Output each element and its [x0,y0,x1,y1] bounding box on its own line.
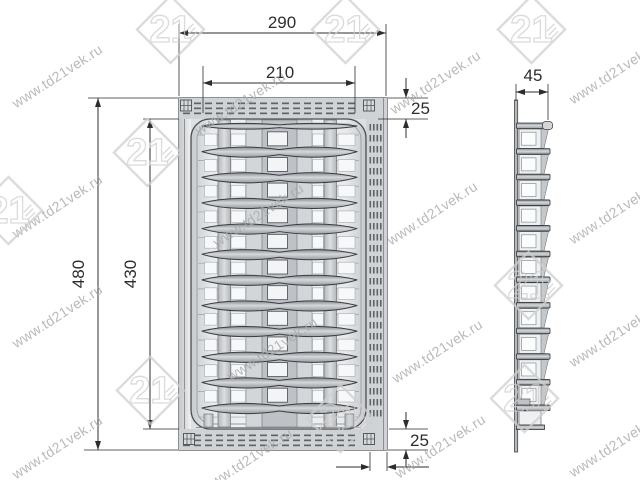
front-opening [313,339,324,351]
border-tick [370,366,372,373]
border-tick [370,278,372,285]
border-dash [337,440,344,442]
border-dash [205,435,212,437]
border-dash [304,445,311,447]
border-dash [293,435,300,437]
border-tick [373,212,375,219]
side-rail-bar [517,379,551,385]
border-dash [227,103,234,105]
border-dash [337,113,344,115]
border-tick [377,300,379,307]
border-dash [216,445,223,447]
border-tick [373,168,375,175]
border-tick [370,311,372,318]
border-tick [380,267,382,274]
side-pocket-hole [522,235,537,248]
arrow-up [403,450,409,459]
border-dash [293,113,300,115]
arrow-left [516,89,525,95]
side-pocket-hole [522,337,537,350]
border-dash [304,103,311,105]
side-pocket-shade [541,206,549,225]
border-dash [194,440,201,442]
front-opening [338,211,355,223]
border-tick [380,223,382,230]
border-tick [373,289,375,296]
front-opening [231,262,246,274]
arrow-left [179,30,188,36]
border-tick [377,410,379,417]
front-opening [338,134,355,146]
border-dash [315,440,322,442]
border-dash [194,103,201,105]
side-pocket-shade [541,283,549,302]
arrow-up [95,98,101,107]
border-tick [373,311,375,318]
border-tick [380,300,382,307]
arrow-right [377,30,386,36]
side-pocket-hole [522,132,537,145]
side-pocket-hole [522,209,537,222]
border-tick [377,124,379,131]
front-opening [313,390,324,402]
front-bottom-right-foot [345,414,354,427]
drawing-scene: 290 210 480 430 [0,0,640,480]
border-tick [380,245,382,252]
front-opening [313,160,324,172]
technical-drawing-canvas: 290 210 480 430 [0,0,640,480]
border-tick [377,179,379,186]
border-dash [216,435,223,437]
border-dash [227,440,234,442]
border-tick [377,333,379,340]
dim-label-inner-width: 210 [266,63,294,82]
front-opening [313,134,324,146]
front-opening [205,160,218,172]
border-dash [293,445,300,447]
border-dash [348,103,355,105]
border-tick [370,388,372,395]
border-tick [380,410,382,417]
border-tick [377,212,379,219]
border-tick [380,157,382,164]
front-center-hole [268,209,288,223]
front-opening [313,211,324,223]
border-tick [373,278,375,285]
border-tick [373,190,375,197]
border-tick [380,278,382,285]
border-dash [337,435,344,437]
front-opening [231,185,246,197]
front-opening [313,237,324,249]
border-tick [380,399,382,406]
front-left-wall [179,98,191,450]
arrow-right [346,80,355,86]
front-center-hole [268,260,288,274]
border-tick [377,366,379,373]
border-tick [370,179,372,186]
arrow-down [95,441,101,450]
arrow-up [403,119,409,128]
side-top-end-cap [543,122,553,130]
border-dash [216,103,223,105]
front-opening [313,185,324,197]
border-dash [326,108,333,110]
border-dash [260,103,267,105]
border-dash [249,440,256,442]
side-rail-bar [517,354,551,360]
border-tick [373,135,375,142]
border-tick [380,355,382,362]
front-opening [231,237,246,249]
border-dash [348,440,355,442]
border-tick [380,366,382,373]
border-tick [377,355,379,362]
border-dash [348,108,355,110]
border-dash [326,113,333,115]
side-rail-bar [517,302,551,308]
border-dash [194,108,201,110]
border-dash [304,440,311,442]
border-tick [380,256,382,263]
front-opening [205,134,218,146]
border-dash [337,445,344,447]
border-dash [227,108,234,110]
arrow-right [539,89,548,95]
border-tick [377,245,379,252]
border-tick [373,223,375,230]
border-tick [373,377,375,384]
front-center-hole [268,286,288,300]
border-tick [380,377,382,384]
border-tick [370,256,372,263]
front-opening [313,262,324,274]
border-tick [380,190,382,197]
border-tick [373,146,375,153]
border-dash [238,435,245,437]
border-tick [373,366,375,373]
border-tick [377,289,379,296]
side-rail-bar [517,277,551,283]
dim-bottom-margin: 25 [388,412,429,468]
border-dash [238,103,245,105]
border-dash [337,103,344,105]
border-dash [205,108,212,110]
border-dash [271,440,278,442]
border-tick [380,289,382,296]
border-tick [380,124,382,131]
border-dash [326,103,333,105]
front-opening [205,211,218,223]
side-pocket-hole [522,286,537,299]
dim-label-overall-height: 480 [69,260,88,288]
dim-depth: 45 [516,66,548,120]
border-dash [348,445,355,447]
border-dash [205,103,212,105]
border-dash [293,440,300,442]
front-view [179,98,387,450]
side-pocket-shade [541,155,549,174]
front-opening [313,365,324,377]
dim-label-depth: 45 [524,66,543,85]
front-opening [205,313,218,325]
border-tick [377,223,379,230]
border-tick [377,267,379,274]
side-pocket-hole [522,312,537,325]
border-tick [373,410,375,417]
border-dash [348,113,355,115]
border-tick [370,245,372,252]
arrow-right [361,464,370,470]
side-rail-bar [517,200,551,206]
border-tick [373,300,375,307]
border-dash [304,435,311,437]
front-opening [338,313,355,325]
border-dash [238,113,245,115]
border-tick [377,344,379,351]
front-opening [231,365,246,377]
border-dash [194,435,201,437]
border-tick [370,190,372,197]
border-tick [377,157,379,164]
side-rail-bar [517,251,551,257]
border-tick [380,146,382,153]
border-tick [373,333,375,340]
border-dash [205,113,212,115]
border-tick [377,388,379,395]
border-dash [227,113,234,115]
side-pocket-shade [541,385,549,404]
front-opening [338,339,355,351]
border-dash [282,113,289,115]
border-dash [304,108,311,110]
front-opening [205,185,218,197]
side-pocket-hole [522,158,537,171]
arrow-down [403,89,409,98]
arrow-left [387,464,396,470]
border-tick [380,201,382,208]
side-bottom-pocket [519,411,541,425]
front-bottom-left-foot [204,414,213,427]
border-tick [380,344,382,351]
side-pocket-shade [541,334,549,353]
border-tick [373,234,375,241]
border-tick [380,388,382,395]
border-dash [271,103,278,105]
front-opening [231,160,246,172]
border-tick [370,300,372,307]
border-tick [373,399,375,406]
front-center-hole [268,132,288,146]
side-pocket-hole [522,363,537,376]
front-opening [338,185,355,197]
border-tick [373,157,375,164]
border-tick [377,399,379,406]
front-opening [313,288,324,300]
side-rail-bar [517,226,551,232]
side-view [515,100,553,452]
front-center-hole [268,337,288,351]
front-opening [205,365,218,377]
border-dash [326,435,333,437]
border-tick [370,267,372,274]
border-dash [326,445,333,447]
border-dash [260,435,267,437]
side-pocket-hole [522,260,537,273]
border-dash [216,440,223,442]
border-dash [238,440,245,442]
side-pocket-shade [541,308,549,327]
border-dash [282,440,289,442]
side-rail-bar [517,405,551,411]
front-opening [338,390,355,402]
dim-label-inner-height: 430 [121,260,140,288]
side-pocket-shade [541,129,549,148]
border-tick [370,355,372,362]
front-opening [338,365,355,377]
front-opening [231,313,246,325]
border-dash [304,113,311,115]
border-dash [315,445,322,447]
dim-side-border-width [336,452,429,471]
border-dash [216,108,223,110]
border-tick [370,322,372,329]
border-tick [370,201,372,208]
border-tick [370,223,372,230]
side-pockets [519,129,549,405]
border-tick [380,311,382,318]
border-tick [370,410,372,417]
side-pocket-shade [541,257,549,276]
border-dash [315,108,322,110]
side-rail-bar [517,174,551,180]
border-tick [370,399,372,406]
border-dash [205,440,212,442]
border-tick [380,333,382,340]
border-dash [271,113,278,115]
border-dash [315,435,322,437]
border-dash [282,108,289,110]
front-opening [231,288,246,300]
dim-label-overall-width: 290 [268,13,296,32]
border-dash [249,113,256,115]
arrow-up [147,119,153,128]
border-dash [260,108,267,110]
side-pocket-shade [541,360,549,379]
arrow-down [403,420,409,429]
front-opening [338,262,355,274]
border-dash [183,113,190,115]
border-dash [260,445,267,447]
border-dash [326,440,333,442]
border-tick [380,234,382,241]
border-tick [380,322,382,329]
front-opening [338,237,355,249]
border-dash [205,445,212,447]
border-tick [373,245,375,252]
border-tick [370,135,372,142]
border-dash [282,445,289,447]
border-tick [373,124,375,131]
border-dash [315,113,322,115]
border-tick [373,388,375,395]
side-pocket-shade [541,232,549,251]
border-dash [194,113,201,115]
border-dash [260,440,267,442]
border-tick [377,190,379,197]
border-tick [377,311,379,318]
border-dash [249,103,256,105]
border-dash [249,108,256,110]
front-opening [205,288,218,300]
side-pocket-hole [522,184,537,197]
border-tick [377,201,379,208]
side-rail-bar [517,328,551,334]
border-dash [238,445,245,447]
front-opening [205,237,218,249]
border-tick [370,212,372,219]
side-rail-bar [517,149,551,155]
front-opening [205,390,218,402]
border-tick [373,344,375,351]
border-tick [377,146,379,153]
border-tick [373,322,375,329]
border-tick [377,377,379,384]
border-dash [249,435,256,437]
side-pocket-shade [541,180,549,199]
border-dash [293,108,300,110]
border-tick [370,344,372,351]
border-tick [377,256,379,263]
border-dash [282,435,289,437]
border-tick [373,256,375,263]
front-opening [205,262,218,274]
border-tick [370,157,372,164]
border-dash [315,103,322,105]
border-dash [260,113,267,115]
border-tick [370,377,372,384]
front-opening [231,339,246,351]
border-tick [377,278,379,285]
border-tick [370,289,372,296]
front-center-hole [268,388,288,402]
border-dash [293,103,300,105]
border-dash [238,108,245,110]
border-tick [380,135,382,142]
border-dash [337,108,344,110]
dim-label-bottom-margin: 25 [410,431,429,450]
border-tick [370,168,372,175]
front-center-hole [268,183,288,197]
front-opening [231,134,246,146]
border-dash [216,113,223,115]
front-center-hole [268,311,288,325]
front-opening [205,339,218,351]
border-tick [380,212,382,219]
border-dash [348,435,355,437]
border-dash [271,108,278,110]
arrow-left [203,80,212,86]
border-tick [370,124,372,131]
front-center-hole [268,234,288,248]
side-bottom-bar [517,425,545,430]
border-tick [380,179,382,186]
border-tick [373,355,375,362]
front-opening [313,313,324,325]
border-tick [373,201,375,208]
border-tick [377,234,379,241]
front-center-hole [268,363,288,377]
